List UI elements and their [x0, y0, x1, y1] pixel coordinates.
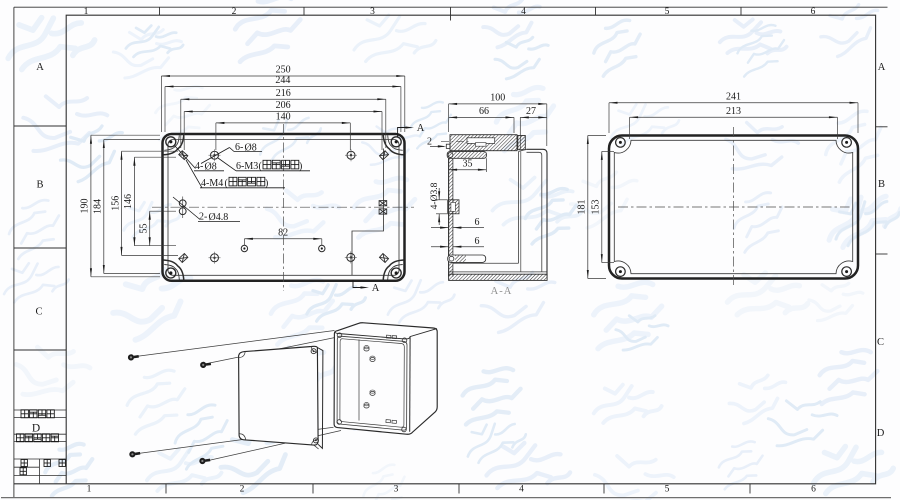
svg-text:D: D: [32, 423, 40, 435]
svg-text:3: 3: [394, 485, 399, 495]
svg-text:2: 2: [240, 485, 245, 495]
svg-text:6: 6: [811, 7, 816, 17]
svg-text:206: 206: [276, 100, 291, 111]
svg-text:2-: 2-: [199, 211, 207, 222]
svg-text:181: 181: [577, 200, 588, 215]
svg-text:2: 2: [427, 136, 432, 147]
svg-text:A: A: [372, 283, 380, 294]
svg-text:D: D: [877, 428, 885, 439]
svg-text:5: 5: [665, 485, 670, 495]
svg-text:140: 140: [276, 112, 291, 123]
svg-text:153: 153: [591, 200, 602, 215]
svg-text:6: 6: [475, 217, 480, 228]
svg-text:184: 184: [93, 199, 104, 214]
svg-text:250: 250: [276, 65, 291, 76]
svg-text:216: 216: [276, 88, 291, 99]
svg-text:): ): [265, 178, 268, 189]
svg-text:5: 5: [665, 7, 670, 17]
svg-text:66: 66: [479, 106, 489, 117]
svg-text:4-: 4-: [195, 161, 203, 172]
svg-text:146: 146: [123, 194, 134, 209]
svg-text:A: A: [417, 123, 425, 134]
svg-text:A: A: [878, 62, 886, 73]
svg-text:241: 241: [726, 91, 741, 102]
svg-text:A: A: [36, 62, 44, 73]
svg-text:2: 2: [232, 7, 237, 17]
svg-text:4: 4: [521, 7, 526, 17]
svg-text:B: B: [878, 179, 885, 190]
svg-text:4-M4: 4-M4: [201, 178, 223, 189]
svg-text:244: 244: [275, 75, 290, 86]
svg-text:213: 213: [726, 106, 741, 117]
svg-text:6: 6: [811, 485, 816, 495]
svg-text:82: 82: [278, 227, 288, 238]
svg-text:55: 55: [138, 223, 149, 233]
svg-text:4-Ø3.8: 4-Ø3.8: [430, 182, 440, 209]
svg-text:100: 100: [490, 93, 505, 104]
svg-text:1: 1: [84, 7, 89, 17]
svg-text:27: 27: [526, 106, 536, 117]
svg-text:C: C: [35, 307, 42, 318]
svg-text:6: 6: [475, 236, 480, 247]
svg-text:Ø8: Ø8: [245, 142, 257, 153]
svg-text:Ø4.8: Ø4.8: [209, 212, 229, 223]
svg-text:6-: 6-: [235, 142, 243, 153]
svg-text:): ): [299, 161, 302, 172]
svg-text:B: B: [36, 180, 43, 191]
svg-text:35: 35: [463, 158, 473, 169]
svg-text:190: 190: [80, 199, 91, 214]
svg-text:3: 3: [370, 7, 375, 17]
svg-text:A-A: A-A: [491, 286, 513, 297]
svg-text:C: C: [877, 337, 884, 348]
svg-text:Ø8: Ø8: [205, 161, 217, 172]
svg-text:156: 156: [110, 196, 121, 211]
svg-text:1: 1: [87, 485, 92, 495]
svg-text:6-M3: 6-M3: [236, 161, 258, 172]
svg-text:4: 4: [519, 485, 524, 495]
